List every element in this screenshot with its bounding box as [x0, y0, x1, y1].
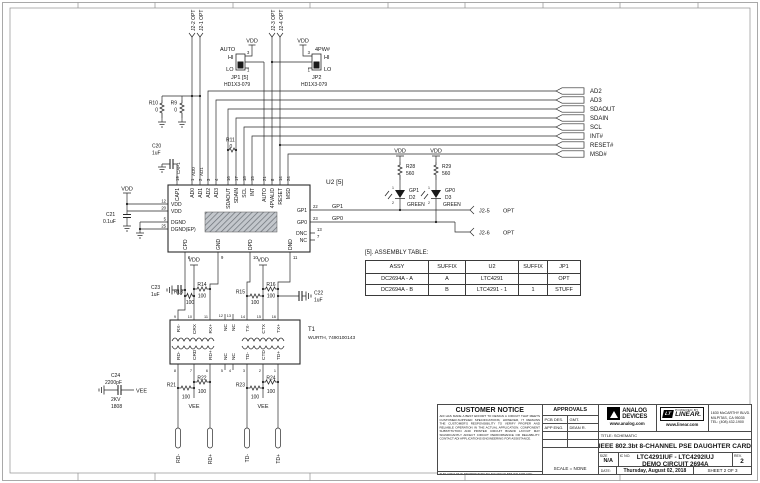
assembly-cell: OPT [548, 274, 581, 285]
analog-devices-logo-icon [607, 407, 620, 420]
u2-pin-name: RESET [278, 188, 284, 205]
u2-pin-name: AD1 [198, 188, 204, 198]
u2-pin-num: 3 [206, 178, 211, 181]
res-val: 0 [155, 108, 158, 114]
assembly-cell: LTC4291 [466, 274, 519, 285]
assembly-cell: STUFF [548, 285, 581, 296]
res-ref: R29 [442, 164, 451, 170]
flag-label: SCL [590, 125, 602, 131]
t1-pin-name: NC [231, 323, 237, 330]
u2-pin-name: AD2 [206, 188, 212, 198]
customer-notice-title: CUSTOMER NOTICE [438, 405, 542, 414]
resistor-R28 [398, 162, 402, 180]
u2-pin-num: 2 [198, 178, 203, 181]
t1-pin-name: RX- [176, 324, 182, 333]
u2-pin-num: 4 [214, 178, 219, 181]
cap-pkg: 1808 [111, 404, 122, 410]
icno-cell: IC NO. LTC4291IUF - LTC4292IUJ DEMO CIRC… [619, 453, 733, 466]
t1-pin-name: RX+ [208, 324, 214, 334]
u2-pin-num: 16 [226, 176, 231, 181]
u2-net: AD0 [191, 167, 196, 176]
t1-pin-num: 14 [241, 315, 245, 319]
led-ref: D3 [445, 195, 452, 201]
u2-pin-num: 13 [317, 227, 322, 232]
u2-pin-name: DNC [296, 231, 307, 237]
led-D3 [421, 190, 441, 199]
date-row: DATE: Thursday, August 02, 2018 SHEET 2 … [599, 467, 751, 474]
u2-pin-num: 19 [175, 176, 180, 181]
resistor-R10 [160, 100, 164, 118]
t1-part: WURTH, 7490100143 [308, 335, 355, 341]
assembly-col-header: JP1 [548, 261, 581, 274]
flag-label: MSD# [590, 152, 607, 158]
title-block-right: ANALOG DEVICES www.analog.com LT POWERED… [599, 405, 751, 474]
flag-label: SDAOUT [590, 107, 615, 113]
res-ref: R10 [149, 101, 158, 107]
cap-ref: C23 [151, 285, 160, 291]
cap-ref: C20 [152, 144, 161, 150]
t1-pin-name: CRD [192, 349, 198, 360]
pad-label: TD- [245, 454, 251, 463]
address-line: TEL: (408) 432-1900 [711, 420, 751, 425]
adi-url: www.analog.com [610, 421, 645, 426]
cap-val: 1uF [151, 292, 160, 298]
led-color: GREEN [407, 202, 425, 208]
rev-value: 2 [734, 458, 750, 465]
linear-brand-cell: LT POWERED BY LINEAR. www.linear.com [657, 405, 709, 431]
res-ref: R28 [406, 164, 415, 170]
u2-pin-num: 25 [161, 224, 166, 229]
u2-pin-num: 18 [242, 176, 247, 181]
res-val: 100 [198, 294, 207, 300]
flag-label: INT# [590, 134, 604, 140]
u2-pin-num: 11 [293, 255, 298, 260]
u2-pin-name: GP0 [297, 220, 307, 226]
size-cell: SIZE N/A [599, 453, 619, 466]
vdd-label: VDD [188, 258, 200, 264]
u2-pin-name: MSD [286, 188, 292, 200]
assembly-table: [5]. ASSEMBLY TABLE: ASSY SUFFIX U2 SUFF… [365, 250, 581, 296]
led-pin: 2 [428, 201, 430, 205]
res-val: 100 [182, 395, 191, 401]
scale-note: SCALE = NONE [543, 463, 598, 474]
resistor-R23 [247, 386, 263, 390]
jp2-pin3: 3 [308, 50, 311, 55]
assembly-col-header: ASSY [366, 261, 429, 274]
led-pin: 1 [392, 186, 394, 190]
assembly-cell: 1 [519, 285, 548, 296]
linear-tech-logo-icon: LT [662, 410, 673, 418]
u2-pin-name: VDD [171, 202, 182, 208]
res-ref: R11 [226, 138, 235, 144]
res-ref: R21 [167, 383, 176, 389]
assembly-cell: B [429, 285, 466, 296]
assembly-cell: DC2694A - B [366, 285, 429, 296]
u2-pin-name: GND [216, 239, 222, 251]
res-val: 100 [198, 389, 207, 395]
customer-notice: CUSTOMER NOTICE ADI HAS MADE A BEST EFFO… [438, 405, 543, 474]
jp1-pin1: 1 [247, 68, 250, 73]
vee-label: VEE [257, 404, 268, 410]
res-ref: R23 [236, 383, 245, 389]
u2-pin-num: 5 [164, 217, 167, 222]
t1-pin-num: 3 [243, 369, 245, 373]
res-ref: R24 [266, 376, 275, 382]
t1-pin-name: NC [223, 353, 229, 360]
t1-pin-name: CTX [261, 323, 267, 333]
vdd-label: VDD [430, 149, 442, 155]
u2-pin-name: DND [288, 239, 294, 250]
jflag-label: J2-5 [479, 209, 490, 215]
linear-wordmark: LINEAR. [675, 412, 701, 419]
pad-label: RD+ [208, 454, 214, 464]
res-ref: R22 [197, 376, 206, 382]
net-label-4pw: 4PW# [315, 47, 331, 53]
cap-rating: 2KV [111, 397, 121, 403]
u2-net: AD1 [199, 167, 204, 176]
jumper-JP2 [312, 54, 321, 70]
u2-pin-num: 23 [313, 216, 318, 221]
u2-pin-name: SDAIN [234, 188, 240, 204]
res-val: 100 [251, 395, 260, 401]
u2-pin-num: 24 [286, 176, 291, 181]
res-val: 100 [186, 300, 195, 306]
vdd-label: VDD [257, 258, 269, 264]
u2-pin-name: DPD [248, 239, 254, 250]
res-val: 100 [251, 300, 260, 306]
adi-name-line1: ANALOG [622, 408, 647, 414]
jp1-pin3: 3 [247, 50, 250, 55]
u2-pin-num: 8 [270, 178, 275, 181]
date-label: DATE: [599, 467, 617, 474]
led-net: GP1 [409, 188, 419, 194]
assembly-col-header: U2 [466, 261, 519, 274]
schematic-page: J2-2 OPT J2-1 OPT J2-3 OPT J2-4 OPT AUTO… [0, 0, 760, 483]
t1-pin-num: 8 [174, 369, 176, 373]
cap-val: 1uF [152, 151, 161, 157]
res-val: 0 [230, 144, 233, 150]
res-val: 0 [174, 108, 177, 114]
t1-pin-num: 10 [188, 315, 192, 319]
vdd-label: VDD [246, 39, 258, 45]
res-ref: R9 [171, 101, 178, 107]
cap-ref: C24 [111, 373, 120, 379]
vee-label: VEE [188, 404, 199, 410]
jp1-hi: HI [228, 55, 234, 61]
adi-brand-cell: ANALOG DEVICES www.analog.com [599, 405, 657, 431]
t1-pin-num: 5 [221, 369, 223, 373]
u2-exposed-pad [205, 212, 277, 232]
t1-pin-num: 1 [274, 369, 276, 373]
t1-pin-name: NC [223, 323, 229, 330]
u2-pin-name: INT [250, 188, 256, 196]
u2-pin-name: SCL [242, 188, 248, 198]
assembly-cell: DC2694A - A [366, 274, 429, 285]
t1-pin-num: 15 [257, 315, 261, 319]
resistor-R29 [434, 162, 438, 180]
date-value: Thursday, August 02, 2018 [617, 468, 693, 474]
t1-pin-num: 6 [206, 369, 208, 373]
cap-val: 2200pF [105, 380, 122, 386]
t1-pin-name: TD+ [276, 351, 282, 360]
flag-label: AD3 [590, 98, 602, 104]
res-val: 100 [267, 389, 276, 395]
t1-pin-num: 12 [219, 314, 223, 318]
approvals-name: DEAN R. [568, 424, 588, 431]
bottom-connector-pads [176, 428, 281, 448]
t1-pin-name: NC [231, 353, 237, 360]
assembly-cell [519, 274, 548, 285]
vee-label: VEE [136, 389, 147, 395]
vdd-label: VDD [121, 187, 133, 193]
rev-cell: REV. 2 [733, 453, 751, 466]
cap-ref: C22 [314, 291, 323, 297]
vdd-label: VDD [297, 39, 309, 45]
jp2-lo: LO [324, 67, 332, 73]
assembly-cell: LTC4291 - 1 [466, 285, 519, 296]
u2-pin-num: 12 [161, 199, 166, 204]
u2-pin-name: DGND [171, 220, 186, 226]
u2-pin-num: 17 [234, 176, 239, 181]
t1-pin-name: TD- [245, 352, 251, 360]
u2-pin-num: 1 [190, 178, 195, 181]
t1-pin-num: 11 [204, 315, 208, 319]
led-net: GP0 [445, 188, 455, 194]
flag-label: SDAIN [590, 116, 608, 122]
assembly-table-title: [5]. ASSEMBLY TABLE: [365, 250, 581, 256]
linear-url: www.linear.com [666, 422, 698, 427]
cap-val: 0.1uF [103, 219, 116, 225]
res-ref: R16 [266, 282, 275, 288]
res-val: 560 [406, 171, 415, 177]
u2-pin-num: 14 [278, 176, 283, 181]
jp1-ref: JP1 [5] [231, 75, 249, 81]
cap-val: 1uF [314, 298, 323, 304]
customer-notice-body: ADI HAS MADE A BEST EFFORT TO DESIGN A C… [438, 414, 542, 442]
title-label: TITLE: SCHEMATIC [599, 432, 751, 440]
u2-pin-name: VDD [171, 209, 182, 215]
u2-pin-num: 21 [262, 176, 267, 181]
u2-pin-num: 9 [221, 255, 224, 260]
t1-pin-name: RD+ [208, 350, 214, 360]
led-ref: D2 [409, 195, 416, 201]
t1-pin-num: 13 [227, 314, 231, 318]
resistor-R9 [180, 100, 184, 118]
u2-pin-name: AUTO [262, 188, 268, 202]
net-label-gp1: GP1 [332, 204, 343, 210]
approvals-title: APPROVALS [543, 405, 598, 416]
icno-label: IC NO. [620, 454, 631, 458]
resistor-R21 [178, 386, 194, 390]
assembly-col-header: SUFFIX [519, 261, 548, 274]
table-row: DC2694A - B B LTC4291 - 1 1 STUFF [366, 285, 581, 296]
u2-pin-num: 15 [250, 176, 255, 181]
demo-circuit-number: DEMO CIRCUIT 2694A [619, 461, 732, 468]
res-ref: R13 [174, 290, 183, 296]
u2-pin-name: NC [300, 238, 308, 244]
jp2-hi: HI [324, 55, 330, 61]
flag-label: RESET# [590, 143, 614, 149]
led-color: GREEN [443, 202, 461, 208]
t1-pin-name: TX+ [276, 324, 282, 333]
jp2-ref: JP2 [312, 75, 321, 81]
company-address: 1630 McCARTHY BLVD. MILPITAS, CA 95035 T… [709, 405, 751, 431]
res-val: 560 [442, 171, 451, 177]
connector-label: J2-1 OPT [199, 10, 205, 31]
u2-pin-name: DGND(EP) [171, 227, 196, 233]
size-value: N/A [600, 458, 617, 464]
u2-pin-num: 20 [161, 206, 166, 211]
led-D2 [385, 190, 405, 199]
approvals-role: APP ENG. [543, 424, 568, 431]
approvals-name: GMT. [568, 416, 582, 423]
sheet-number: SHEET 2 OF 3 [693, 467, 751, 474]
assembly-col-header: SUFFIX [429, 261, 466, 274]
cap-ref: C21 [106, 212, 115, 218]
led-pin: 2 [392, 201, 394, 205]
jp1-lo: LO [226, 67, 234, 73]
approvals-row-empty [543, 440, 598, 448]
approvals-row: PCB DES. GMT. [543, 416, 598, 424]
part-number: LTC4291IUF - LTC4292IUJ [619, 454, 732, 461]
u2-pin-name: AD3 [214, 188, 220, 198]
flag-label: AD2 [590, 89, 602, 95]
u2-pin-name: GP1 [297, 208, 307, 214]
u2-pin-name: CAP1 [175, 188, 181, 201]
resistor-R13 [185, 294, 194, 299]
jumper-JP1 [236, 54, 245, 70]
approvals-box: APPROVALS PCB DES. GMT. APP ENG. DEAN R.… [543, 405, 599, 474]
net-label-gp0: GP0 [332, 216, 343, 222]
t1-ref: T1 [308, 327, 316, 333]
adi-name-line2: DEVICES [622, 414, 647, 420]
connector-label: J2-2 OPT [191, 10, 197, 31]
u2-pin-name: CPD [183, 239, 189, 250]
jflag-label: J2-6 [479, 231, 490, 237]
title-block: CUSTOMER NOTICE ADI HAS MADE A BEST EFFO… [437, 404, 752, 475]
t1-pin-num: 7 [190, 369, 192, 373]
u2-pin-num: 22 [313, 204, 318, 209]
jflag-opt: OPT [503, 209, 515, 215]
t1-pin-num: 9 [174, 315, 176, 319]
jp2-part: HD1X3-079 [301, 82, 327, 88]
u2-ref: U2 [5] [326, 179, 344, 186]
approvals-role: PCB DES. [543, 416, 568, 423]
signal-flags [556, 88, 584, 157]
led-pin: 1 [428, 186, 430, 190]
t1-pin-num: 2 [259, 369, 261, 373]
t1-pin-name: CTD [261, 350, 267, 360]
u2-pin-name: 4PVALID [270, 188, 276, 209]
t1-pin-name: TX- [245, 324, 251, 332]
table-row: DC2694A - A A LTC4291 OPT [366, 274, 581, 285]
resistor-R15 [247, 294, 263, 298]
u2-pin-name: SDAOUT [226, 188, 232, 209]
approvals-row: APP ENG. DEAN R. [543, 424, 598, 432]
u2-net: CAP1 [176, 162, 181, 174]
jflag-opt: OPT [503, 231, 515, 237]
t1-pin-num: 4 [229, 369, 231, 373]
page-title: IEEE 802.3bt 8-CHANNEL PSE DAUGHTER CARD [599, 440, 751, 453]
assembly-cell: A [429, 274, 466, 285]
pad-label: TD+ [276, 454, 282, 464]
u2-pin-num: 7 [317, 234, 320, 239]
pad-label: RD- [176, 454, 182, 463]
u2-pin-name: AD0 [190, 188, 196, 198]
res-ref: R15 [236, 290, 245, 296]
customer-notice-footer: THIS CIRCUIT IS PROPRIETARY TO ADI AND S… [438, 472, 542, 475]
connector-label: J2-3 OPT [271, 10, 277, 31]
t1-pin-name: RD- [176, 351, 182, 360]
res-val: 100 [267, 294, 276, 300]
approvals-row-empty [543, 432, 598, 440]
t1-pin-name: CRX [192, 323, 198, 334]
t1-pin-num: 16 [272, 315, 276, 319]
connector-label: J2-4 OPT [279, 10, 285, 31]
net-label-auto: AUTO [220, 47, 236, 53]
res-ref: R14 [197, 282, 206, 288]
jp1-part: HD1X3-079 [224, 82, 250, 88]
vdd-label: VDD [394, 149, 406, 155]
